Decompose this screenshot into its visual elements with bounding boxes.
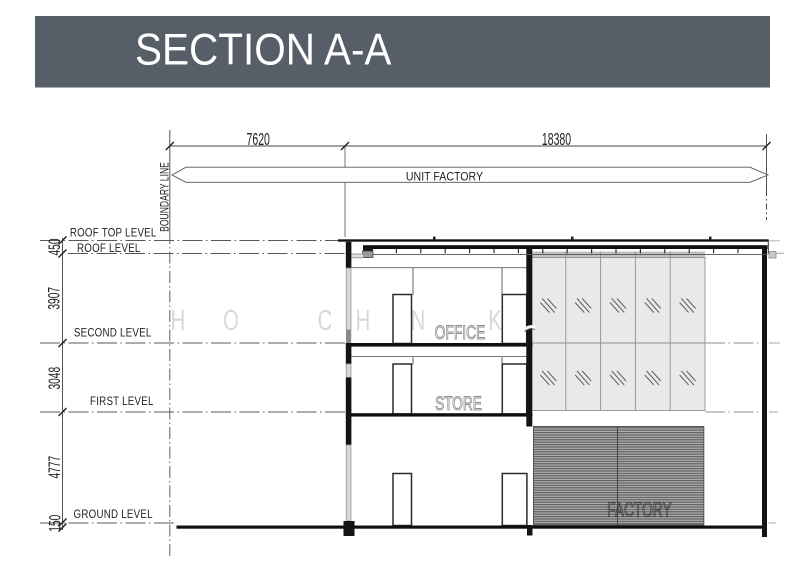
svg-text:UNIT FACTORY: UNIT FACTORY [406, 171, 484, 184]
svg-text:K: K [488, 305, 502, 337]
svg-text:ROOF LEVEL: ROOF LEVEL [77, 242, 141, 255]
svg-text:N: N [411, 305, 426, 337]
svg-text:4777: 4777 [44, 456, 63, 479]
svg-text:H: H [356, 305, 371, 337]
svg-text:BOUNDARY LINE: BOUNDARY LINE [159, 162, 172, 232]
svg-text:3048: 3048 [44, 367, 63, 390]
svg-text:C: C [318, 305, 333, 337]
svg-text:GROUND LEVEL: GROUND LEVEL [74, 508, 153, 521]
svg-text:FACTORY: FACTORY [607, 498, 672, 521]
svg-text:H: H [171, 305, 186, 337]
svg-text:STORE: STORE [435, 392, 482, 414]
svg-text:3907: 3907 [44, 287, 63, 310]
svg-text:OFFICE: OFFICE [435, 322, 486, 344]
svg-text:18380: 18380 [542, 130, 571, 149]
svg-text:SECTION A-A: SECTION A-A [135, 25, 392, 75]
svg-text:7620: 7620 [247, 130, 270, 149]
svg-text:ROOF TOP LEVEL: ROOF TOP LEVEL [70, 226, 157, 239]
svg-text:450: 450 [44, 238, 63, 255]
svg-text:SECOND LEVEL: SECOND LEVEL [74, 326, 152, 339]
svg-text:FIRST LEVEL: FIRST LEVEL [90, 395, 154, 408]
svg-text:O: O [223, 305, 239, 337]
svg-text:150: 150 [45, 515, 64, 532]
